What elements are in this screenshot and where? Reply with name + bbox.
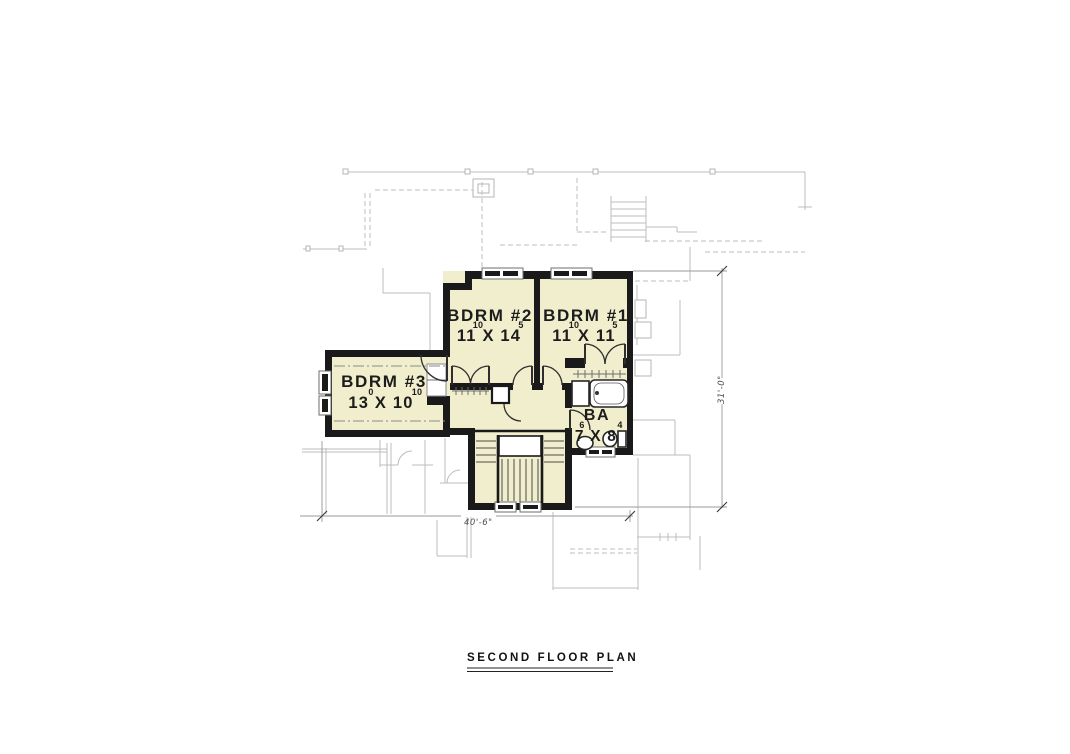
wall-divider-bdrm1-bdrm2 (534, 271, 540, 390)
first-floor-outline-right (633, 285, 700, 570)
shower-icon (572, 381, 589, 406)
wall-bdrm3-top (325, 350, 450, 357)
roof-dashed-outline (365, 178, 805, 281)
first-floor-outline-bottom-left (302, 438, 468, 514)
wall-hall-north-b (532, 383, 543, 390)
wall-stair-left (468, 428, 475, 510)
bdrm1-dims-sup1: 10 (569, 320, 580, 330)
bath-dims-sup1: 6 (579, 420, 584, 430)
bath-label: BA (584, 407, 610, 424)
plan-title: SECOND FLOOR PLAN (467, 652, 638, 664)
floor-plan-drawing: 40'-6" 31'-0" BDRM #2 11 X 14 10 5 BDRM … (0, 0, 1070, 754)
window-stair-right (520, 502, 541, 512)
bathtub-icon (590, 380, 628, 407)
wall-bath-top-left (565, 358, 585, 368)
bdrm3-dims-sup2: 10 (412, 387, 423, 397)
bdrm2-dims-sup2: 5 (518, 320, 523, 330)
bath-dims-sup2: 4 (617, 420, 622, 430)
bdrm3-closet (427, 364, 446, 396)
window-stair-left (495, 502, 516, 512)
sheet-title: SECOND FLOOR PLAN (467, 652, 638, 672)
linen-closet (492, 386, 509, 403)
chimney (473, 179, 494, 197)
bdrm3-dims: 13 X 10 (348, 394, 413, 412)
stair-landing (499, 436, 541, 456)
title-underline (467, 668, 613, 672)
bath-dims: 7 X 8 (575, 428, 617, 445)
exterior-stairs (611, 196, 697, 281)
bdrm1-dims-sup2: 5 (612, 320, 617, 330)
floor-plan-page: 40'-6" 31'-0" BDRM #2 11 X 14 10 5 BDRM … (0, 0, 1070, 754)
wall-hall-north-c (562, 383, 572, 390)
wall-bdrm3-bottom (325, 430, 450, 437)
overall-width-label: 40'-6" (464, 518, 493, 528)
window-bdrm1-top (551, 268, 592, 279)
window-bdrm2-top (482, 268, 523, 279)
bdrm2-dims: 11 X 14 (457, 327, 521, 345)
bdrm2-dims-sup1: 10 (473, 320, 484, 330)
window-bdrm3-left-upper (319, 371, 331, 394)
window-bdrm3-left-lower (319, 396, 331, 415)
wall-stair-right (565, 428, 572, 510)
wall-right (627, 271, 633, 455)
left-eave-line (303, 246, 430, 350)
overall-height-label: 31'-0" (717, 375, 727, 404)
wall-left-lower (443, 400, 450, 428)
bdrm3-dims-sup1: 0 (368, 387, 373, 397)
bdrm1-dims: 11 X 11 (552, 327, 615, 345)
